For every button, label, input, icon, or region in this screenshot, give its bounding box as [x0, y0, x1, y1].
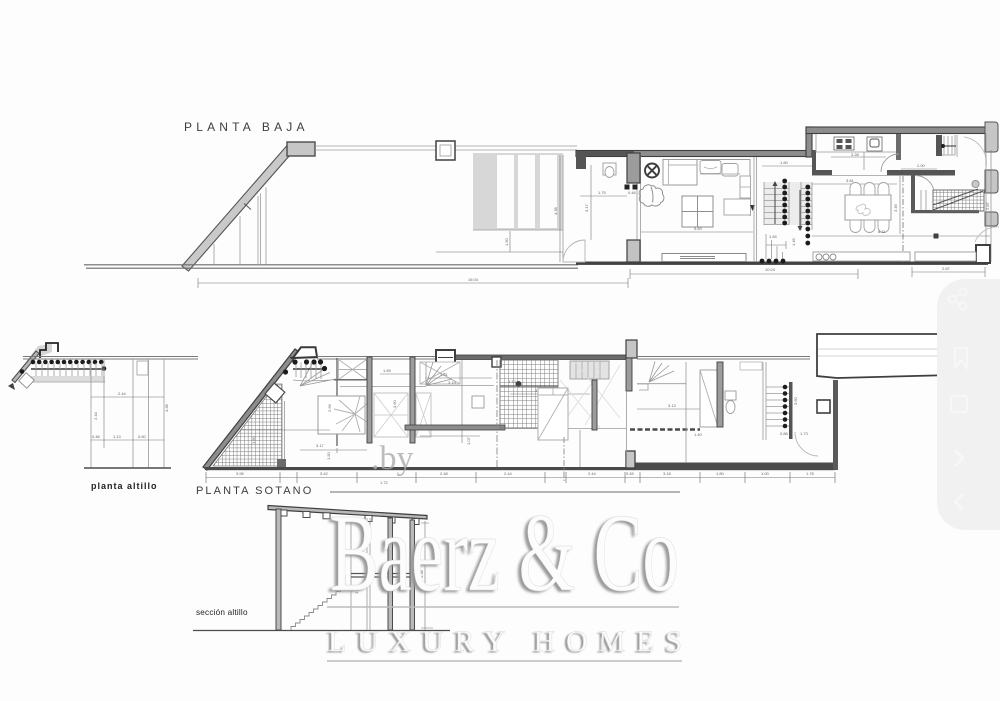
svg-text:1.72: 1.72	[380, 480, 389, 485]
svg-text:3.95: 3.95	[236, 471, 245, 476]
svg-text:0.46: 0.46	[92, 434, 101, 439]
svg-text:0.86: 0.86	[780, 431, 789, 436]
svg-text:1.75: 1.75	[598, 190, 607, 195]
svg-text:1.80: 1.80	[780, 160, 789, 165]
svg-text:3.13: 3.13	[508, 379, 517, 384]
svg-text:1.00: 1.00	[761, 471, 770, 476]
svg-text:4.38: 4.38	[553, 206, 558, 215]
svg-text:2.56: 2.56	[327, 403, 332, 412]
svg-text:1.40: 1.40	[694, 432, 703, 437]
svg-text:8.11: 8.11	[878, 229, 886, 234]
svg-text:2.87: 2.87	[985, 201, 990, 210]
svg-text:2.44: 2.44	[93, 411, 98, 420]
svg-text:1.50: 1.50	[326, 451, 331, 460]
svg-text:3.17: 3.17	[316, 443, 325, 448]
svg-text:2.44: 2.44	[504, 471, 513, 476]
svg-text:2.87: 2.87	[942, 266, 951, 271]
svg-text:2.44: 2.44	[588, 471, 597, 476]
svg-text:planta altillo: planta altillo	[91, 481, 158, 491]
svg-text:10.04: 10.04	[765, 267, 776, 272]
svg-text:0.60: 0.60	[138, 434, 147, 439]
svg-text:2.00: 2.00	[917, 163, 926, 168]
svg-text:1.49: 1.49	[791, 237, 796, 246]
svg-text:PLANTA BAJA: PLANTA BAJA	[184, 120, 309, 134]
svg-text:3.60: 3.60	[793, 396, 798, 405]
svg-text:3.49: 3.49	[893, 203, 898, 212]
svg-text:1.50: 1.50	[504, 237, 509, 246]
svg-text:PLANTA SOTANO: PLANTA SOTANO	[196, 485, 313, 497]
svg-text:1.80: 1.80	[716, 471, 725, 476]
svg-text:2.31: 2.31	[440, 372, 449, 377]
svg-text:3.17: 3.17	[584, 203, 589, 212]
svg-text:1.13: 1.13	[113, 434, 122, 439]
svg-text:3.60: 3.60	[392, 399, 397, 408]
svg-text:3.42: 3.42	[320, 471, 329, 476]
svg-text:2.44: 2.44	[118, 391, 127, 396]
svg-text:3.28: 3.28	[851, 152, 860, 157]
svg-text:15.04: 15.04	[468, 277, 479, 282]
svg-text:.by: .by	[371, 440, 414, 477]
svg-text:3.19: 3.19	[448, 380, 457, 385]
svg-text:Baerz & Co: Baerz & Co	[330, 492, 679, 615]
svg-text:2.48: 2.48	[440, 471, 449, 476]
svg-text:1.07: 1.07	[466, 436, 471, 445]
svg-text:1.78: 1.78	[806, 471, 815, 476]
svg-text:3.13: 3.13	[668, 403, 677, 408]
svg-text:3.18: 3.18	[663, 471, 672, 476]
svg-text:1.73: 1.73	[800, 431, 809, 436]
svg-text:0.45: 0.45	[626, 471, 635, 476]
svg-text:4.38: 4.38	[164, 403, 169, 412]
svg-text:0.46: 0.46	[628, 190, 637, 195]
svg-text:sección altillo: sección altillo	[196, 608, 248, 617]
svg-text:1.50: 1.50	[251, 435, 256, 444]
svg-text:5.83: 5.83	[694, 226, 703, 231]
svg-text:1.84: 1.84	[769, 234, 778, 239]
svg-text:1.65: 1.65	[383, 368, 392, 373]
svg-text:3.81: 3.81	[846, 178, 855, 183]
